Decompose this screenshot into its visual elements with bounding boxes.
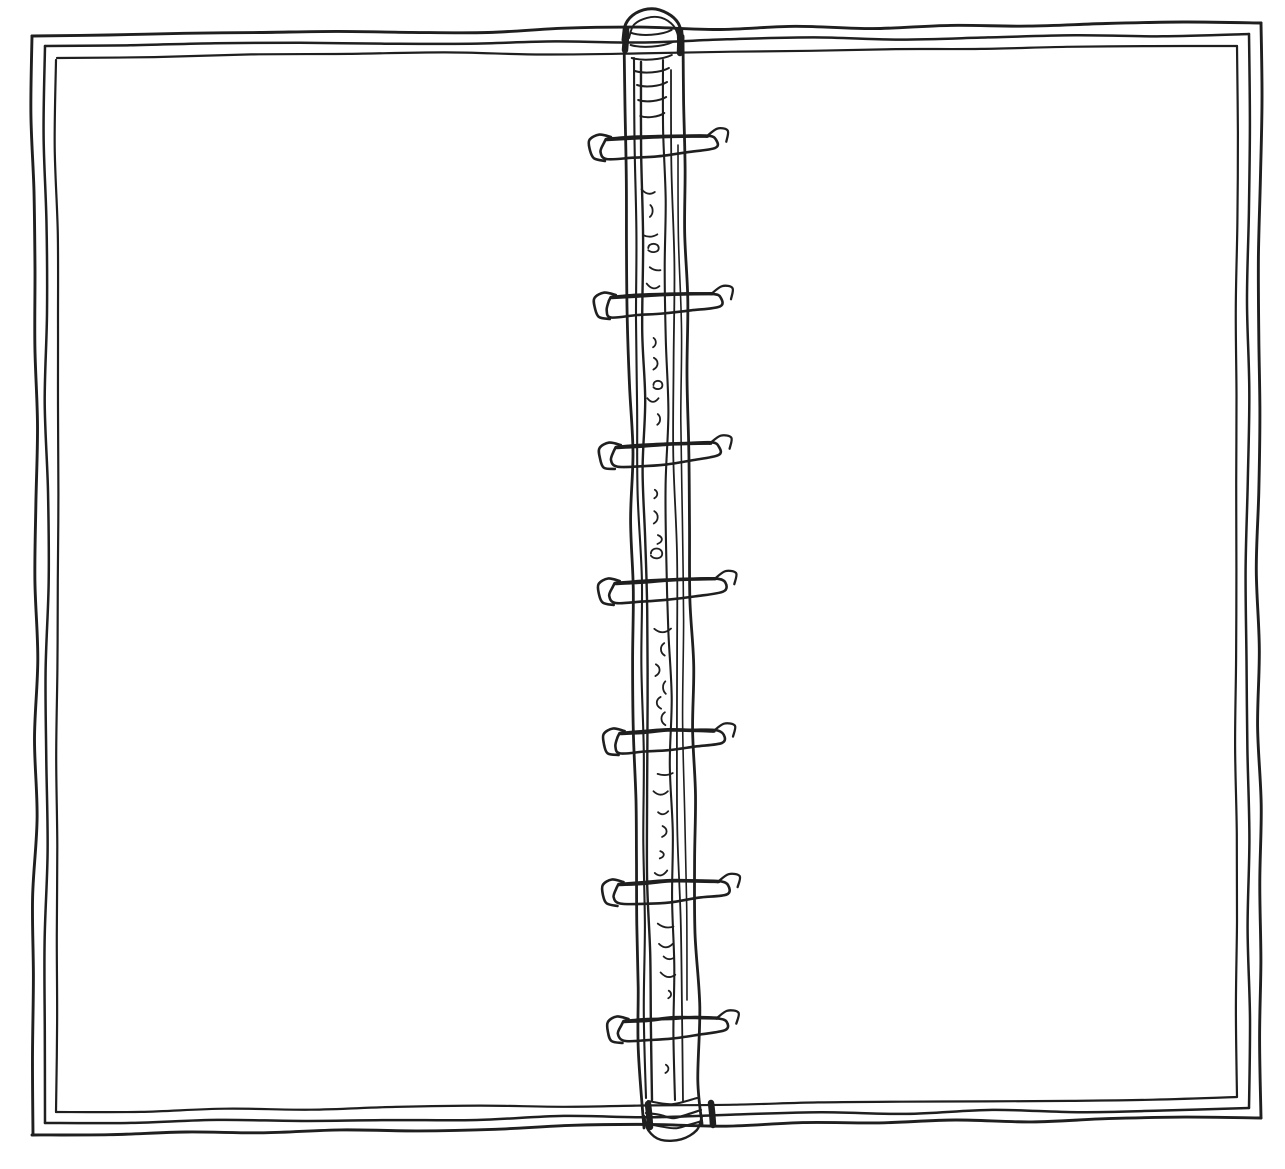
ink-blob-top-left <box>625 29 626 50</box>
left-page <box>70 70 610 1090</box>
notebook-sketch-canvas <box>0 0 1285 1169</box>
ink-blob-bottom-left <box>648 1104 650 1127</box>
right-page <box>720 70 1220 1090</box>
ink-blob-bottom-right <box>711 1103 713 1125</box>
notebook-sketch <box>0 0 1285 1169</box>
